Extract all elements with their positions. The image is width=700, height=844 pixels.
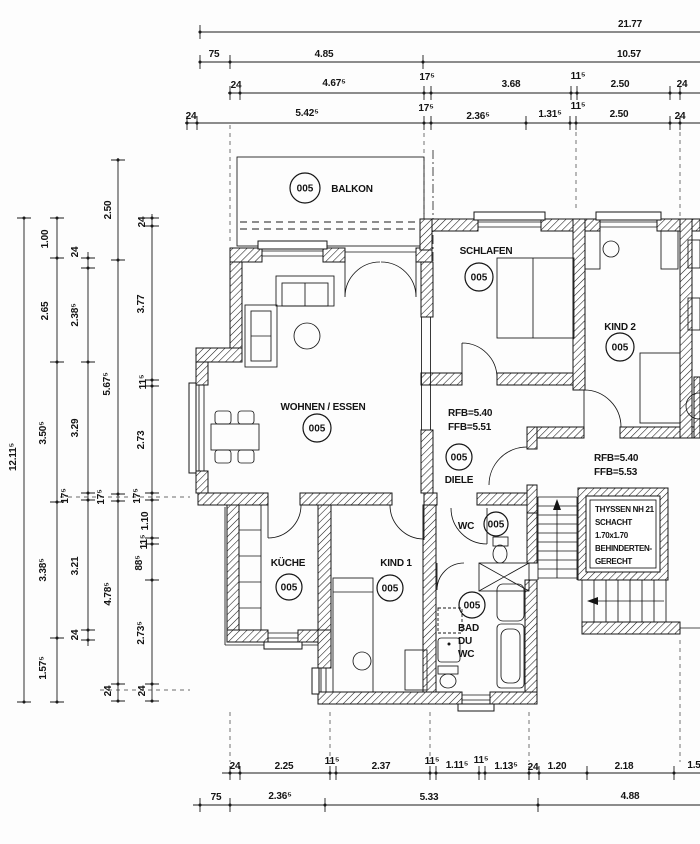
- stool: [353, 652, 371, 670]
- annotation-label: GERECHT: [595, 557, 632, 566]
- dining-table: [211, 424, 259, 450]
- dimension-label: 1.20: [548, 761, 567, 772]
- dimension-label: 24: [70, 629, 81, 640]
- tick-dots: [24, 32, 680, 805]
- balcony-door-left: [345, 262, 380, 297]
- bottom-dimension-labels: 242.2511⁵2.3711⁵1.11⁵11⁵1.13⁵241.202.181…: [211, 755, 700, 803]
- kitchen-counter: [239, 505, 261, 630]
- dimension-label: 2.38⁵: [70, 303, 81, 327]
- room-number: 005: [488, 520, 505, 531]
- room-label: BALKON: [331, 184, 373, 195]
- kind1-door: [390, 505, 424, 540]
- dimension-label: 1.11⁵: [446, 760, 469, 771]
- dimension-label: 17⁵: [419, 72, 435, 83]
- window-sill: [189, 383, 196, 473]
- dimension-label: 3.68: [502, 79, 521, 90]
- dimension-label: 1.57⁵: [38, 656, 49, 680]
- dimension-label: 5.33: [420, 792, 439, 803]
- toilet-tank: [438, 666, 458, 674]
- dimension-label: 24: [103, 685, 114, 696]
- annotation-label: BAD: [458, 623, 479, 634]
- window-sill: [596, 212, 661, 220]
- room-number: 005: [281, 583, 298, 594]
- dimension-label: 24: [231, 80, 242, 91]
- annotation-label: 1.70x1.70: [595, 531, 629, 540]
- dimension-label: 24: [677, 79, 688, 90]
- dimension-label: 2.18: [615, 761, 634, 772]
- bed-kind2: [640, 353, 680, 423]
- window-sill: [264, 642, 302, 649]
- room-label: KIND 2: [604, 322, 636, 333]
- stair-up-arrow: [553, 499, 561, 510]
- bad-door: [437, 563, 464, 590]
- window-sill: [474, 212, 545, 220]
- kueche-door: [268, 505, 301, 538]
- kind2-door: [584, 390, 621, 427]
- dimension-label: 17⁵: [96, 489, 107, 505]
- entry-door-diele: [489, 447, 527, 485]
- dimension-label: 17⁵: [132, 488, 143, 504]
- room-number: 005: [612, 343, 629, 354]
- room-number: 005: [382, 584, 399, 595]
- room-label: SCHLAFEN: [460, 246, 513, 257]
- chair: [215, 411, 231, 424]
- wardrobe: [661, 231, 678, 269]
- window-sill: [312, 668, 319, 694]
- room-label: WOHNEN / ESSEN: [281, 402, 366, 413]
- dimension-label: 2.50: [611, 79, 630, 90]
- floorplan-drawing: 21.77754.8510.57244.67⁵17⁵3.6811⁵2.50242…: [0, 0, 700, 844]
- schlafen-door: [462, 343, 497, 378]
- coffee-table: [294, 323, 320, 349]
- dimension-label: 12.11⁵: [8, 443, 19, 471]
- room-label: KIND 1: [380, 558, 412, 569]
- balcony: [237, 157, 424, 246]
- dimension-label: 2.36⁵: [268, 791, 292, 802]
- dimension-label: 5.42⁵: [295, 108, 319, 119]
- top-dimension-labels: 21.77754.8510.57244.67⁵17⁵3.6811⁵2.50242…: [186, 19, 688, 122]
- dimension-label: 2.37: [372, 761, 391, 772]
- dimension-label: 24: [675, 111, 686, 122]
- chair: [238, 450, 254, 463]
- wardrobe: [585, 231, 600, 269]
- bed-kind1: [333, 578, 373, 692]
- dimension-label: 24: [137, 685, 148, 696]
- annotation-label: BEHINDERTEN-: [595, 544, 652, 553]
- dimension-label: 4.78⁵: [103, 582, 114, 606]
- shower-tub: [497, 584, 524, 621]
- dimension-label: 4.85: [315, 49, 334, 60]
- bed-schlafen: [497, 258, 574, 338]
- dimension-label: 11⁵: [571, 71, 586, 82]
- stair-left-arrow: [587, 597, 598, 605]
- annotation-label: THYSSEN NH 21: [595, 505, 655, 514]
- dimension-label: 2.50: [103, 200, 114, 219]
- dimension-label: 2.25: [275, 761, 294, 772]
- annotation-label: DU: [458, 636, 472, 647]
- dimension-label: 11⁵: [325, 756, 340, 767]
- room-number: 005: [297, 184, 314, 195]
- annotation-label: SCHACHT: [595, 518, 632, 527]
- dimension-label: 17⁵: [418, 103, 434, 114]
- dimension-label: 88⁵: [134, 555, 145, 571]
- dimension-label: 1.00: [40, 229, 51, 248]
- dimension-label: 4.67⁵: [322, 78, 346, 89]
- dimension-label: 2.50: [610, 109, 629, 120]
- dimension-label: 24: [230, 761, 241, 772]
- room-number: 005: [309, 424, 326, 435]
- room-number: 005: [464, 601, 481, 612]
- dimension-label: 17⁵: [60, 488, 71, 504]
- dimension-label: 11⁵: [139, 534, 150, 549]
- annotation-label: FFB=5.53: [594, 467, 638, 478]
- dimension-label: 21.77: [618, 19, 643, 30]
- dimension-label: 10.57: [617, 49, 642, 60]
- dimension-label: 2.73⁵: [136, 621, 147, 645]
- dimension-label: 24: [528, 762, 539, 773]
- dimension-label: 11⁵: [571, 101, 586, 112]
- dimension-label: 75: [209, 49, 220, 60]
- dimension-label: 24: [137, 216, 148, 227]
- dimension-label: 11⁵: [425, 756, 440, 767]
- dimension-label: 24: [70, 246, 81, 257]
- dimension-label: 2.73: [136, 430, 147, 449]
- balcony-drainage-lines: [240, 222, 421, 229]
- window-sill: [458, 704, 494, 711]
- room-number: 005: [451, 453, 468, 464]
- floorplan-canvas: 21.77754.8510.57244.67⁵17⁵3.6811⁵2.50242…: [0, 0, 700, 844]
- annotation-label: WC: [458, 649, 474, 660]
- dimension-label: 1.13⁵: [494, 761, 518, 772]
- dimension-label: 24: [186, 111, 197, 122]
- room-number: 005: [471, 273, 488, 284]
- toilet-bowl: [493, 545, 507, 563]
- annotation-label: FFB=5.51: [448, 422, 492, 433]
- room-label: DIELE: [445, 475, 474, 486]
- dimension-label: 3.38⁵: [38, 558, 49, 582]
- chair: [238, 411, 254, 424]
- dimension-label: 4.88: [621, 791, 640, 802]
- dimension-label: 3.50⁵: [38, 421, 49, 445]
- dimension-label: 75: [211, 792, 222, 803]
- dimension-label: 1.5: [687, 760, 700, 771]
- balcony-outline: [237, 157, 424, 246]
- room-label: KÜCHE: [271, 556, 306, 569]
- dimension-label: 5.67⁵: [102, 372, 113, 396]
- dimension-label: 3.29: [70, 418, 81, 437]
- annotation-label: RFB=5.40: [594, 453, 639, 464]
- stool: [603, 241, 619, 257]
- window-sill: [258, 241, 327, 249]
- room-label: WC: [458, 521, 474, 532]
- balcony-door-right: [381, 262, 416, 297]
- dimension-label: 1.31⁵: [538, 109, 562, 120]
- left-dimension-labels: 12.11⁵1.002.653.50⁵3.38⁵1.57⁵242.38⁵3.29…: [8, 200, 151, 696]
- dimension-label: 1.10: [140, 511, 151, 530]
- chair: [215, 450, 231, 463]
- dimension-label: 2.65: [40, 301, 51, 320]
- dimension-label: 3.77: [136, 294, 147, 313]
- sink: [438, 638, 460, 662]
- toilet-bowl: [440, 674, 456, 688]
- dimension-label: 2.36⁵: [466, 111, 490, 122]
- dimension-label: 3.21: [70, 556, 81, 575]
- dimension-label: 11⁵: [474, 755, 489, 766]
- dimension-label: 11⁵: [138, 374, 149, 389]
- annotation-label: RFB=5.40: [448, 408, 493, 419]
